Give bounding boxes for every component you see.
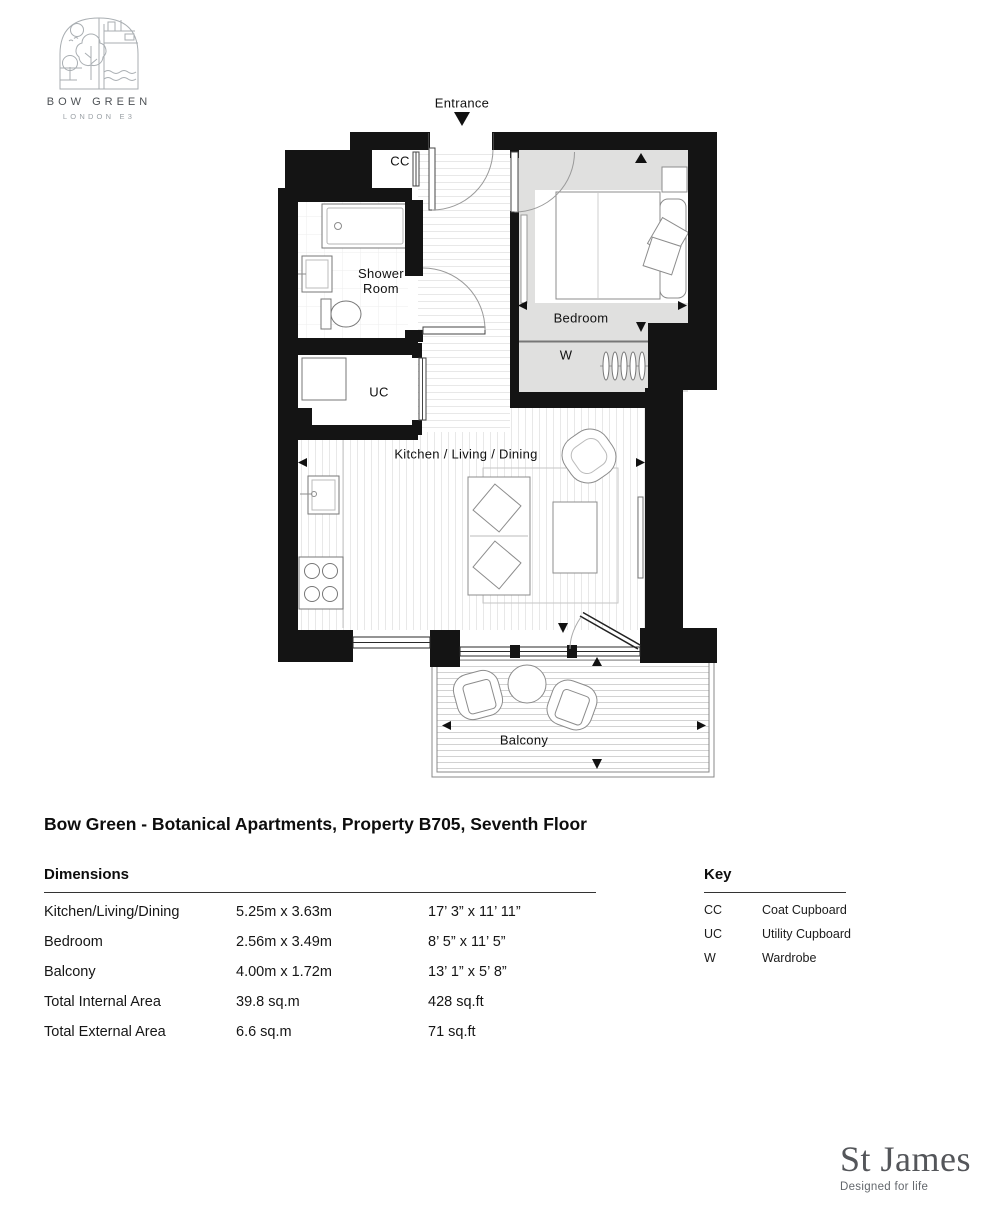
- label-cc: CC: [390, 154, 409, 169]
- imperial-size: 428 sq.ft: [428, 994, 596, 1010]
- label-uc: UC: [369, 385, 388, 400]
- window-layer: [353, 637, 640, 658]
- room-name: Balcony: [44, 964, 236, 980]
- bow-green-logo: BOW GREEN LONDON E3: [44, 10, 154, 121]
- key-label: Wardrobe: [762, 951, 864, 965]
- metric-size: 2.56m x 3.49m: [236, 934, 428, 950]
- key-rule: [704, 892, 846, 893]
- key-label: Coat Cupboard: [762, 903, 864, 917]
- dimensions-rule: [44, 892, 596, 893]
- metric-size: 5.25m x 3.63m: [236, 904, 428, 920]
- tv-unit: [638, 497, 643, 578]
- metric-size: 4.00m x 1.72m: [236, 964, 428, 980]
- key-abbr: CC: [704, 903, 762, 917]
- dimension-row: Bedroom 2.56m x 3.49m 8’ 5” x 11’ 5”: [44, 927, 596, 957]
- dimension-row: Total Internal Area 39.8 sq.m 428 sq.ft: [44, 987, 596, 1017]
- st-james-logo: St James Designed for life: [840, 1140, 971, 1193]
- metric-size: 6.6 sq.m: [236, 1024, 428, 1040]
- floor-plan: [270, 90, 725, 785]
- brand-name: St James: [840, 1140, 971, 1180]
- bow-green-logo-mark: [53, 10, 145, 90]
- dimension-row: Balcony 4.00m x 1.72m 13’ 1” x 5’ 8”: [44, 957, 596, 987]
- dimension-row: Kitchen/Living/Dining 5.25m x 3.63m 17’ …: [44, 897, 596, 927]
- room-name: Kitchen/Living/Dining: [44, 904, 236, 920]
- logo-location: LONDON E3: [44, 112, 154, 121]
- page-title: Bow Green - Botanical Apartments, Proper…: [44, 814, 587, 835]
- dimensions-section: Dimensions Kitchen/Living/Dining 5.25m x…: [44, 866, 596, 1047]
- label-shower-room: Shower Room: [345, 267, 417, 297]
- brand-tagline: Designed for life: [840, 1181, 971, 1193]
- toilet: [321, 299, 361, 329]
- brochure-page: BOW GREEN LONDON E3: [0, 0, 1000, 1228]
- dimensions-heading: Dimensions: [44, 866, 596, 886]
- key-row: CC Coat Cupboard: [704, 898, 864, 922]
- imperial-size: 13’ 1” x 5’ 8”: [428, 964, 596, 980]
- key-row: W Wardrobe: [704, 946, 864, 970]
- key-label: Utility Cupboard: [762, 927, 864, 941]
- room-name: Total Internal Area: [44, 994, 236, 1010]
- entrance-arrow: [454, 112, 470, 126]
- label-kitchen-living-dining: Kitchen / Living / Dining: [394, 447, 537, 462]
- bedroom-radiator: [521, 215, 527, 303]
- key-abbr: W: [704, 951, 762, 965]
- key-row: UC Utility Cupboard: [704, 922, 864, 946]
- logo-name: BOW GREEN: [44, 96, 154, 108]
- imperial-size: 17’ 3” x 11’ 11”: [428, 904, 596, 920]
- imperial-size: 8’ 5” x 11’ 5”: [428, 934, 596, 950]
- uc-door: [419, 358, 426, 420]
- washing-machine: [302, 358, 346, 400]
- metric-size: 39.8 sq.m: [236, 994, 428, 1010]
- label-entrance: Entrance: [435, 96, 489, 111]
- label-wardrobe: W: [560, 348, 573, 363]
- room-name: Total External Area: [44, 1024, 236, 1040]
- cc-door: [413, 152, 419, 186]
- coffee-table: [553, 502, 597, 573]
- kitchen-window-right: [460, 645, 640, 658]
- hob: [299, 557, 343, 609]
- wardrobe-hangers: [600, 352, 648, 380]
- sofa: [468, 477, 530, 595]
- label-bedroom: Bedroom: [554, 311, 609, 326]
- balcony: [432, 655, 714, 777]
- room-name: Bedroom: [44, 934, 236, 950]
- key-abbr: UC: [704, 927, 762, 941]
- imperial-size: 71 sq.ft: [428, 1024, 596, 1040]
- shower-tray: [322, 204, 408, 248]
- kitchen-window-left: [353, 637, 430, 648]
- key-heading: Key: [704, 866, 864, 886]
- key-section: Key CC Coat Cupboard UC Utility Cupboard…: [704, 866, 864, 970]
- label-balcony: Balcony: [500, 733, 548, 748]
- bedside-table: [662, 167, 687, 192]
- balcony-table: [508, 665, 546, 703]
- dimension-row: Total External Area 6.6 sq.m 71 sq.ft: [44, 1017, 596, 1047]
